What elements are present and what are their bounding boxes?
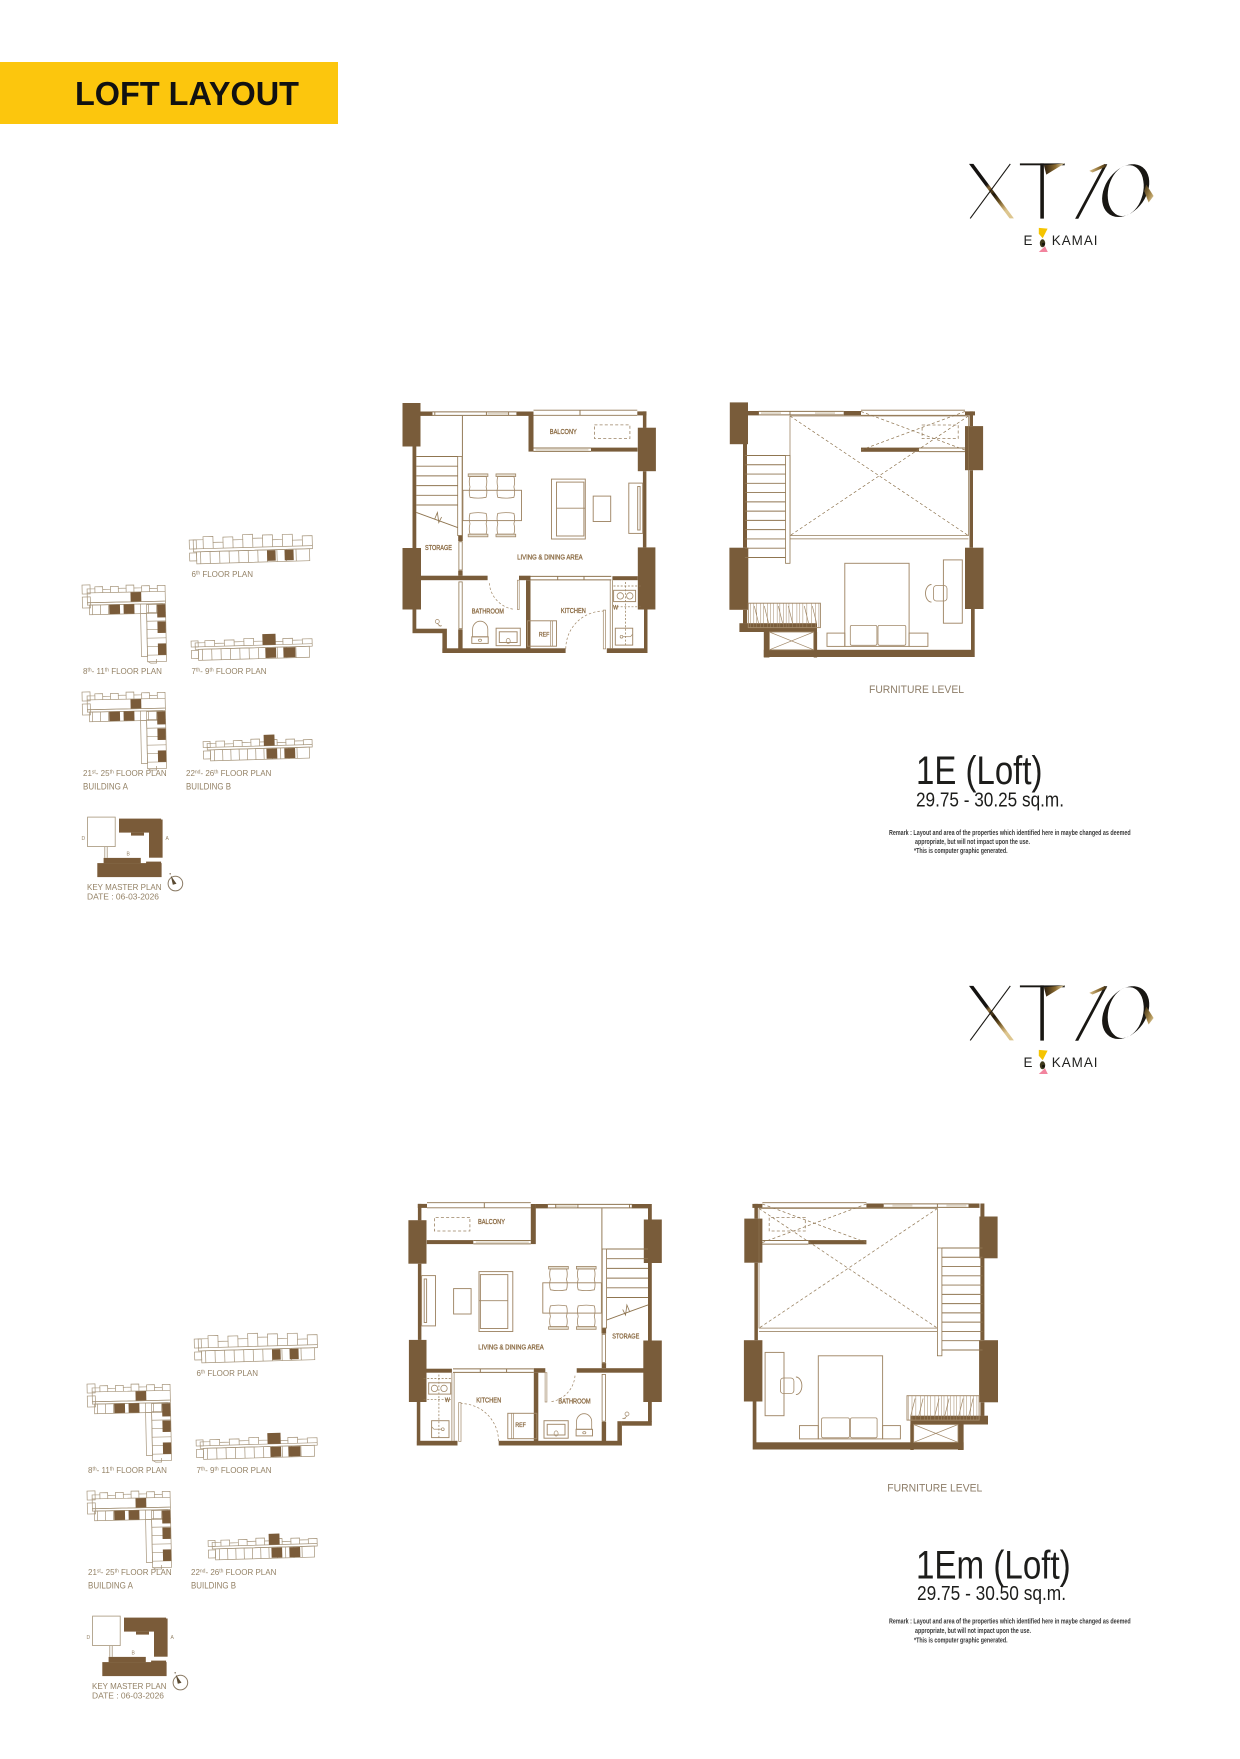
svg-text:KITCHEN: KITCHEN bbox=[476, 1398, 501, 1405]
svg-text:BALCONY: BALCONY bbox=[478, 1219, 505, 1226]
svg-text:REF: REF bbox=[515, 1422, 526, 1429]
svg-text:STORAGE: STORAGE bbox=[612, 1334, 639, 1341]
svg-text:W: W bbox=[445, 1398, 450, 1404]
svg-text:LIVING & DINING AREA: LIVING & DINING AREA bbox=[478, 1345, 544, 1352]
svg-text:LOFT LAYOUT: LOFT LAYOUT bbox=[75, 75, 299, 112]
svg-text:FURNITURE LEVEL: FURNITURE LEVEL bbox=[869, 684, 964, 696]
svg-text:appropriate, but will not impa: appropriate, but will not impact upon th… bbox=[915, 1626, 1031, 1635]
svg-text:STORAGE: STORAGE bbox=[425, 545, 452, 552]
svg-text:appropriate, but will not impa: appropriate, but will not impact upon th… bbox=[915, 837, 1030, 846]
svg-text:KITCHEN: KITCHEN bbox=[561, 608, 586, 615]
svg-text:29.75 - 30.50 sq.m.: 29.75 - 30.50 sq.m. bbox=[917, 1583, 1066, 1605]
svg-text:*This is computer graphic gene: *This is computer graphic generated. bbox=[914, 1636, 1008, 1645]
svg-text:BATHROOM: BATHROOM bbox=[472, 609, 504, 616]
svg-text:REF: REF bbox=[539, 632, 550, 639]
svg-text:LIVING & DINING AREA: LIVING & DINING AREA bbox=[517, 554, 583, 561]
svg-text:1Em (Loft): 1Em (Loft) bbox=[916, 1543, 1071, 1587]
svg-text:1E (Loft): 1E (Loft) bbox=[916, 749, 1043, 793]
svg-text:Remark : Layout and area of t: Remark : Layout and area of the properti… bbox=[889, 828, 1131, 837]
svg-text:FURNITURE LEVEL: FURNITURE LEVEL bbox=[887, 1483, 982, 1495]
svg-text:BALCONY: BALCONY bbox=[550, 429, 577, 436]
svg-text:*This is computer graphic gene: *This is computer graphic generated. bbox=[914, 846, 1008, 855]
svg-text:BATHROOM: BATHROOM bbox=[558, 1399, 590, 1406]
svg-text:Remark : Layout and area of t: Remark : Layout and area of the properti… bbox=[889, 1617, 1131, 1626]
svg-text:W: W bbox=[613, 605, 618, 611]
svg-text:29.75 - 30.25 sq.m.: 29.75 - 30.25 sq.m. bbox=[916, 790, 1064, 812]
